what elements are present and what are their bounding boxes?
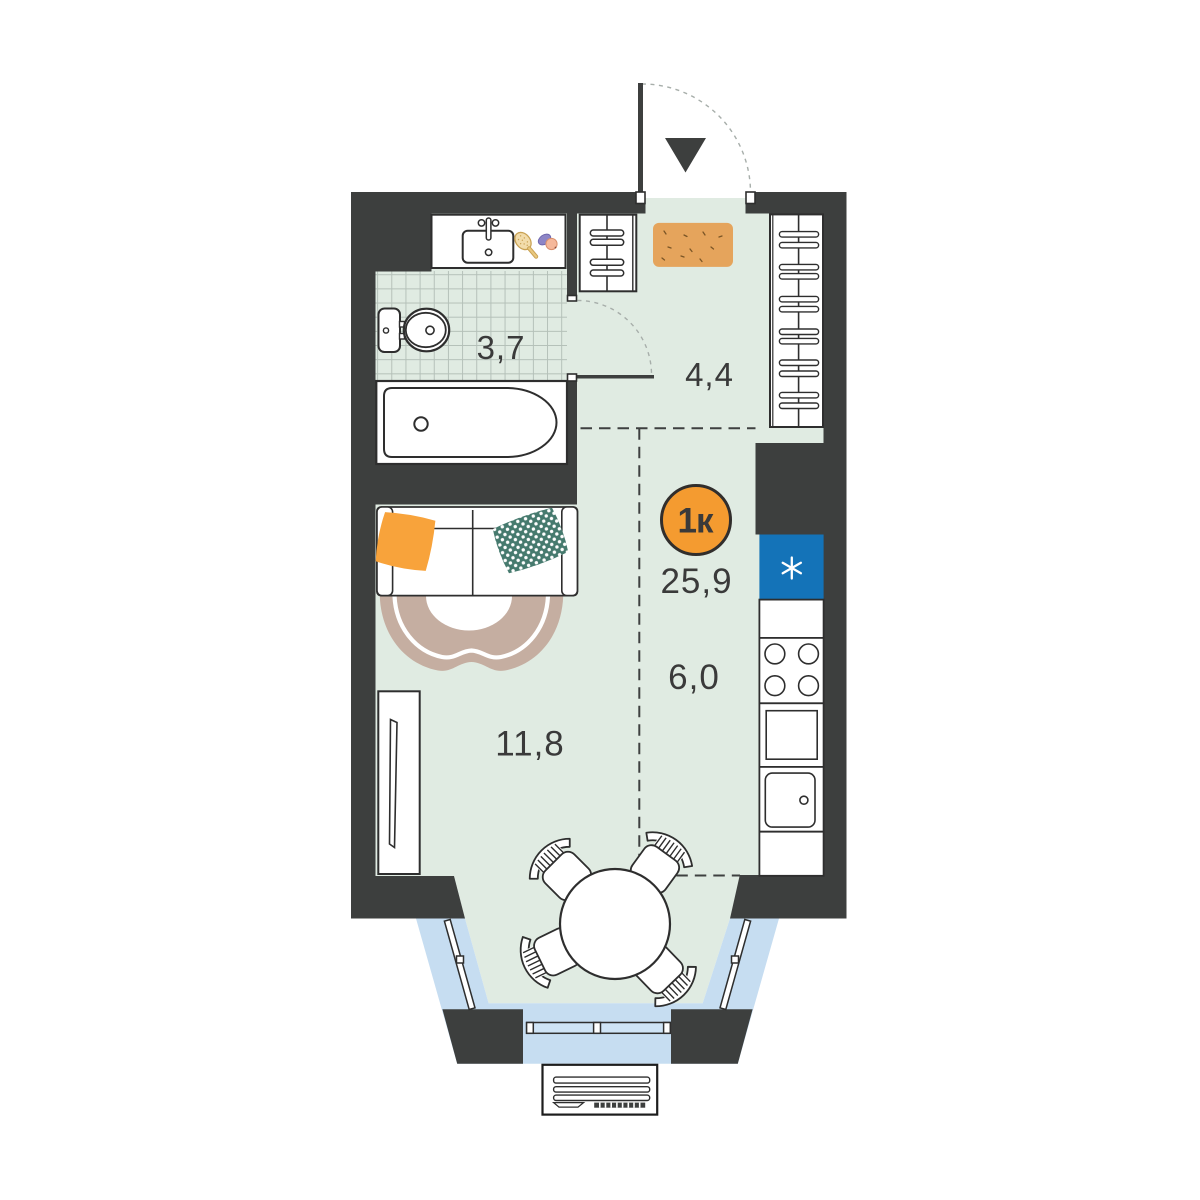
svg-text:3,7: 3,7	[477, 329, 526, 366]
svg-text:11,8: 11,8	[495, 724, 565, 763]
svg-text:1к: 1к	[678, 502, 714, 541]
svg-text:4,4: 4,4	[685, 356, 734, 393]
svg-text:25,9: 25,9	[660, 562, 732, 601]
svg-text:6,0: 6,0	[668, 658, 720, 697]
